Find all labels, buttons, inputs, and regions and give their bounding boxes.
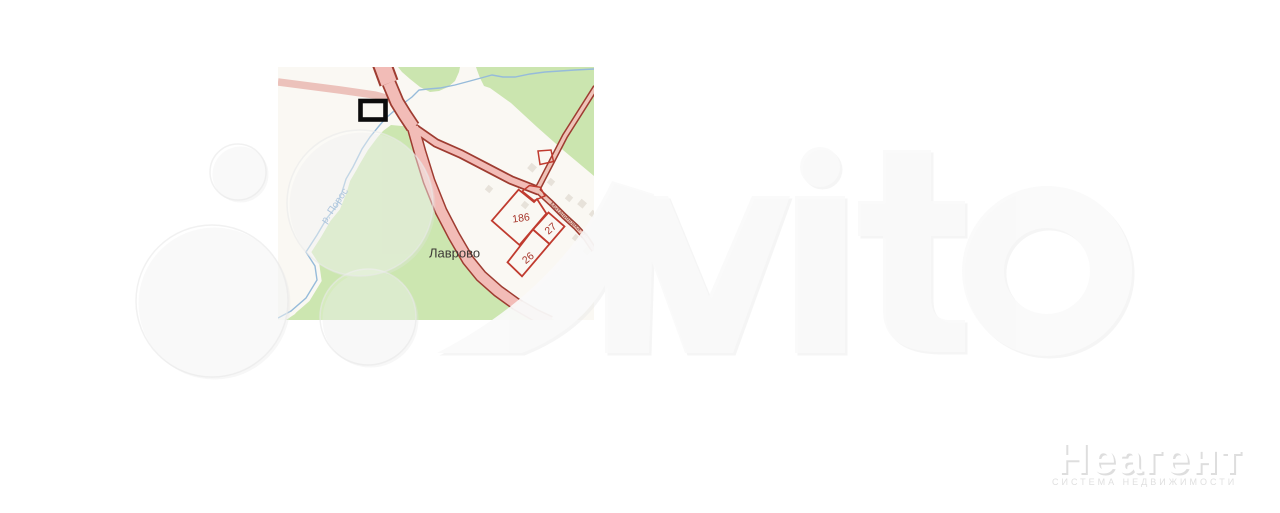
svg-text:СИСТЕМА НЕДВИЖИМОСТИ: СИСТЕМА НЕДВИЖИМОСТИ xyxy=(1052,477,1237,487)
svg-text:186: 186 xyxy=(512,211,531,225)
svg-text:Неагент: Неагент xyxy=(1057,434,1244,483)
svg-text:Лаврово: Лаврово xyxy=(429,246,480,261)
